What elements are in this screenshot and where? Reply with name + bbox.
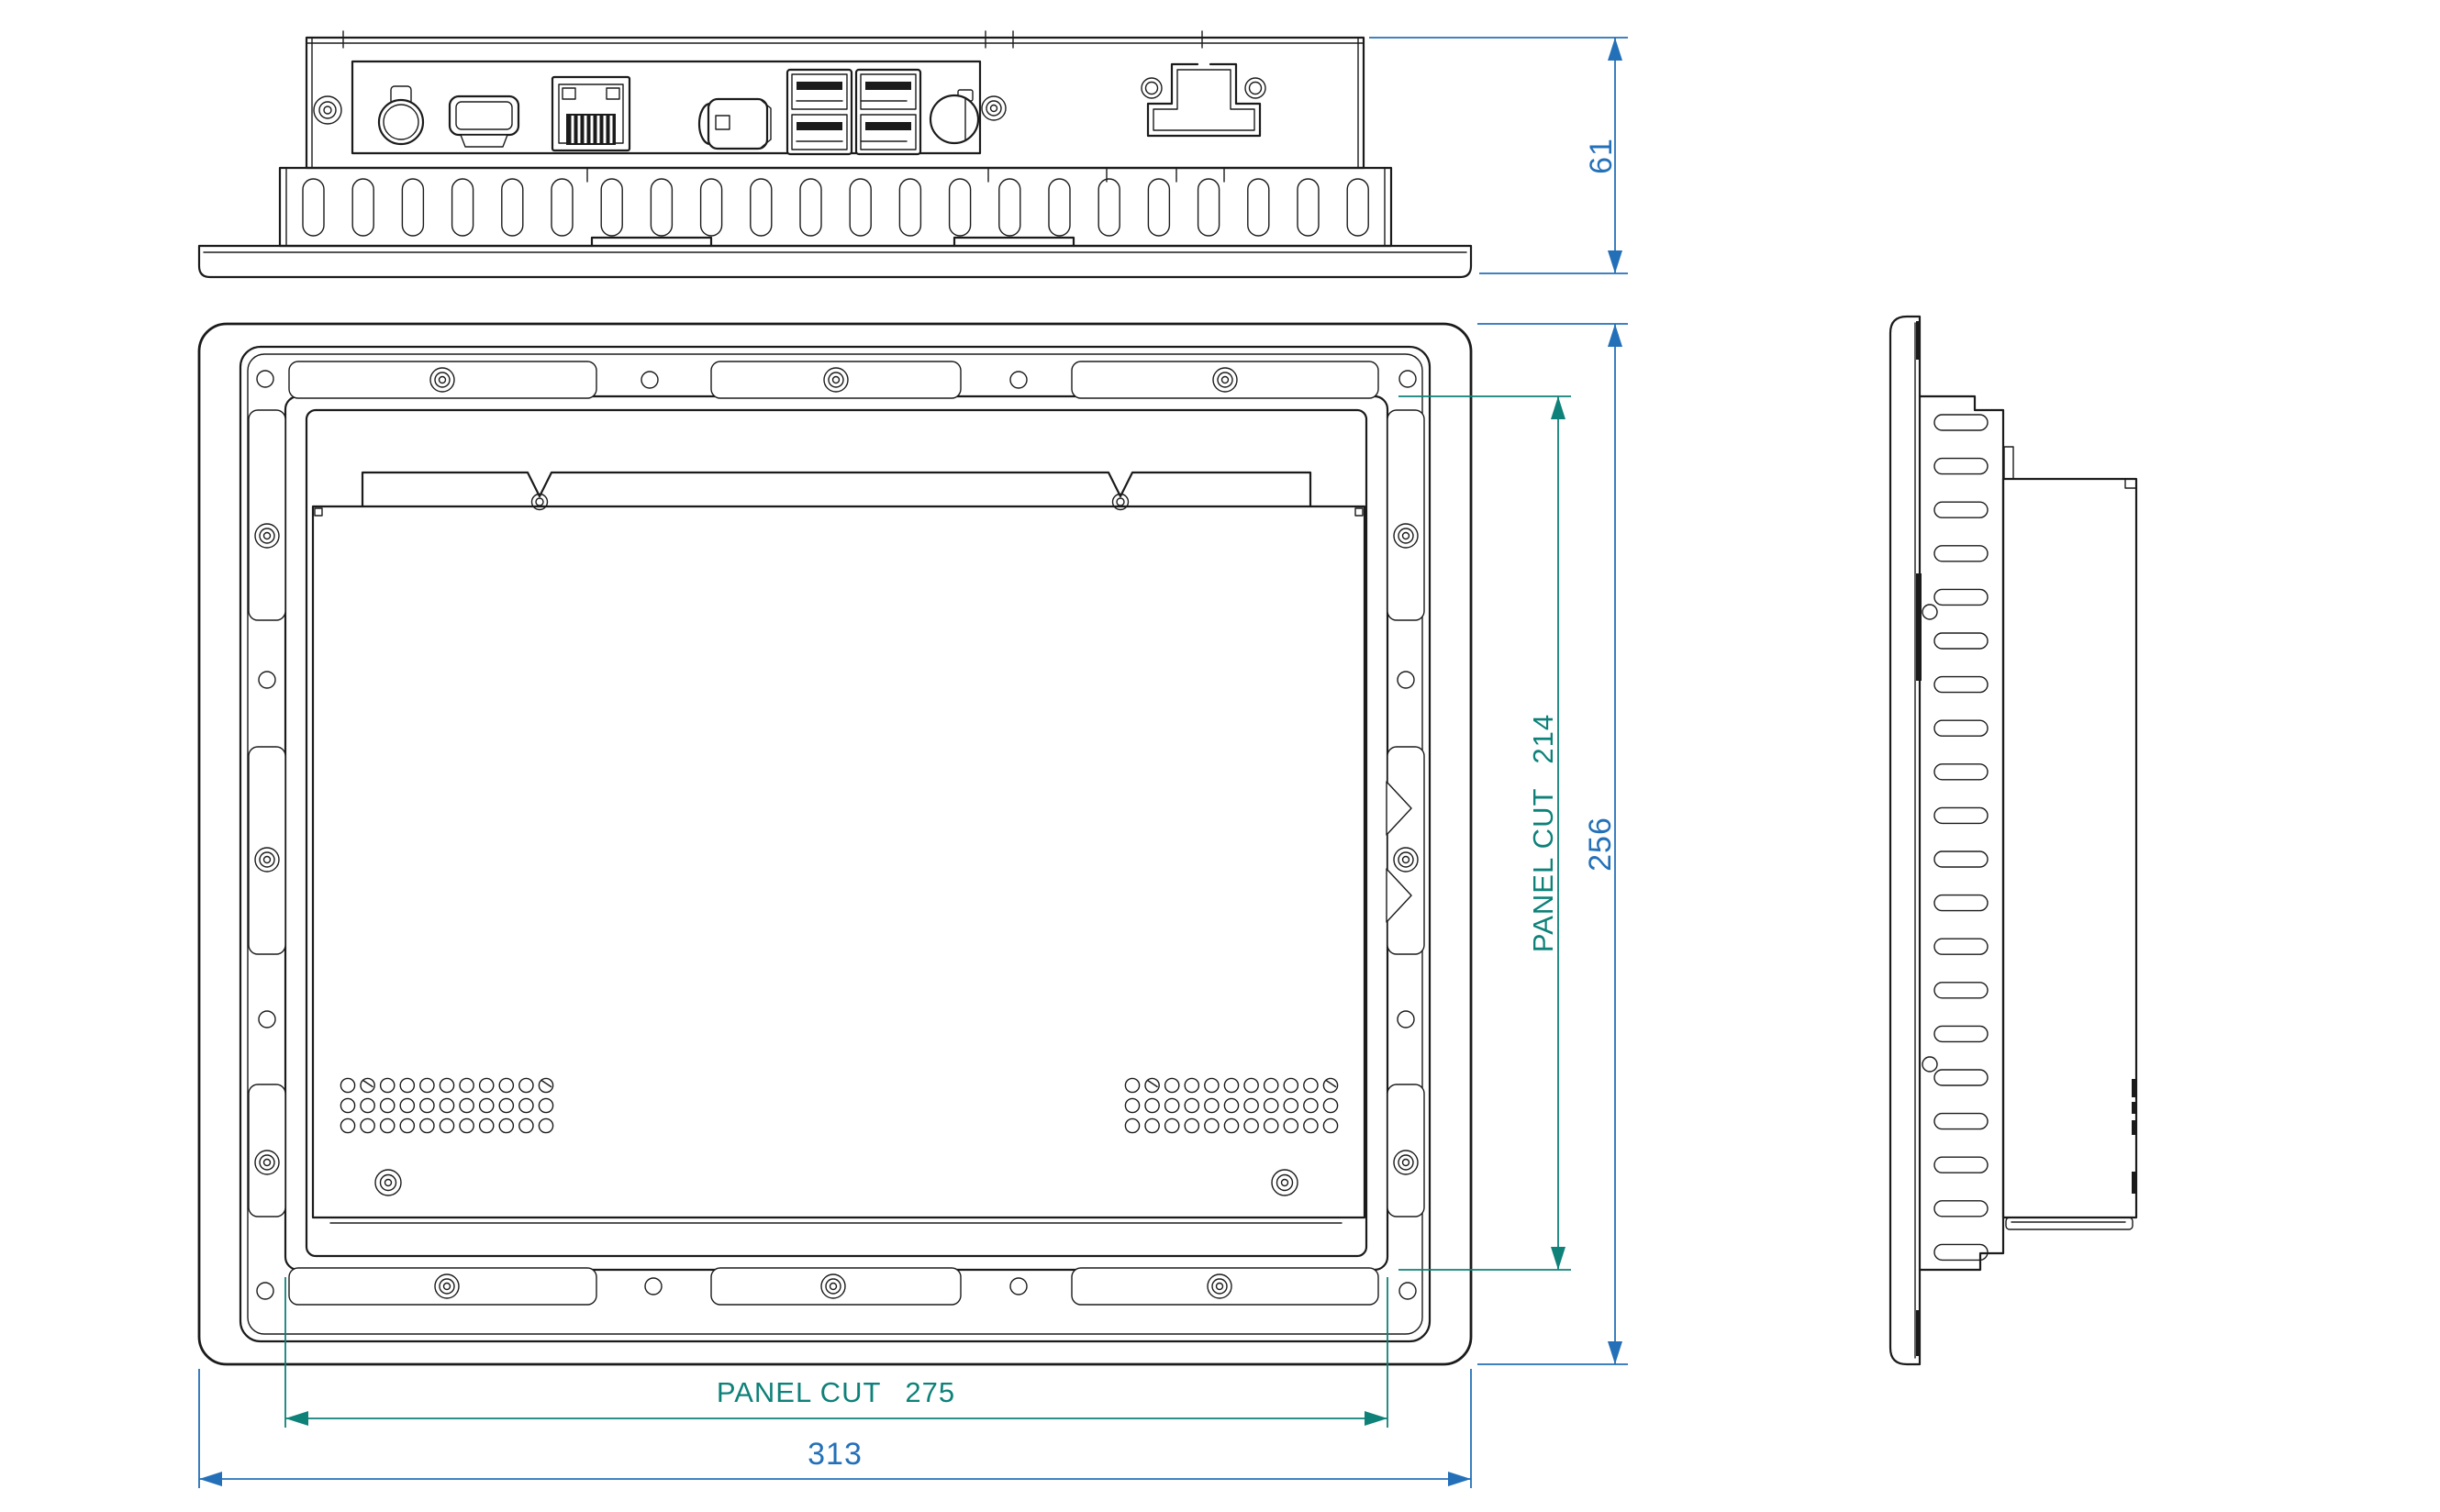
- panel-cut-height-prefix: PANEL CUT: [1527, 788, 1559, 953]
- mounting-tab: [289, 1268, 596, 1305]
- vent-slot: [1347, 179, 1368, 236]
- vent-slot: [1934, 415, 1988, 430]
- side-corner-notch: [2125, 479, 2136, 488]
- vent-slot: [502, 179, 523, 236]
- vent-slot: [1148, 179, 1169, 236]
- vent-slot: [999, 179, 1020, 236]
- vent-hole: [361, 1098, 374, 1112]
- vent-hole: [1304, 1078, 1318, 1092]
- mounting-tab: [249, 747, 285, 954]
- vent-hole: [1125, 1098, 1139, 1112]
- vent-hole: [480, 1078, 494, 1092]
- vent-slot: [950, 179, 971, 236]
- top-vent-slot-group: [303, 179, 1368, 236]
- vent-screw-slash: [363, 1081, 373, 1087]
- vent-hole: [519, 1118, 533, 1132]
- panel-cut-width-value: 275: [905, 1376, 955, 1408]
- mounting-tab: [1387, 747, 1424, 954]
- vent-hole: [1244, 1118, 1258, 1132]
- vent-hole: [1185, 1078, 1198, 1092]
- power-keyhole-icon: [379, 86, 423, 144]
- vent-hole: [1224, 1078, 1238, 1092]
- vent-slot: [800, 179, 821, 236]
- notch-hole-inner: [536, 498, 543, 506]
- plate-screw-icon: [375, 1170, 401, 1195]
- vent-hole: [340, 1118, 354, 1132]
- vent-hole-grid-group: [340, 1078, 1337, 1132]
- vent-slot: [899, 179, 920, 236]
- usb-dual-port-icon: [856, 70, 920, 154]
- notch-hole-inner: [1117, 498, 1124, 506]
- usb-dual-port-icon: [787, 70, 852, 154]
- vent-hole: [1185, 1118, 1198, 1132]
- side-view: [1890, 317, 2136, 1364]
- vent-slot: [1934, 764, 1988, 780]
- frame-inner-opening: [306, 410, 1366, 1256]
- vent-hole: [1165, 1118, 1179, 1132]
- vent-slot: [1248, 179, 1269, 236]
- mounting-hole-icon: [257, 1283, 273, 1299]
- vent-hole: [1165, 1098, 1179, 1112]
- mounting-hole-icon: [1010, 1278, 1027, 1295]
- mounting-hole-icon: [1399, 1283, 1416, 1299]
- vent-hole: [539, 1118, 552, 1132]
- side-hole-icon: [1922, 1057, 1937, 1072]
- vent-hole: [1205, 1118, 1219, 1132]
- vent-slot: [1934, 1026, 1988, 1041]
- vent-hole: [1165, 1078, 1179, 1092]
- vent-hole: [499, 1078, 513, 1092]
- bezel-inner-edge-inner: [248, 354, 1422, 1334]
- side-top-tab: [2004, 447, 2013, 479]
- vent-slot: [751, 179, 772, 236]
- mounting-tab: [1072, 1268, 1378, 1305]
- vent-hole: [1284, 1098, 1298, 1112]
- vent-slot: [850, 179, 871, 236]
- screw-icon: [314, 96, 341, 124]
- vent-slot: [1049, 179, 1070, 236]
- vent-slot: [452, 179, 474, 236]
- plate-corner-mark: [1355, 508, 1363, 516]
- mounting-hole-icon: [257, 371, 273, 387]
- vent-slot: [1934, 459, 1988, 474]
- bezel-edge-mark: [1916, 321, 1921, 360]
- vent-hole: [1284, 1118, 1298, 1132]
- vent-slot: [601, 179, 622, 236]
- mounting-hole-icon: [259, 672, 275, 688]
- vent-hole: [381, 1118, 395, 1132]
- vent-slot: [1198, 179, 1220, 236]
- vent-hole: [440, 1118, 453, 1132]
- top-flange: [199, 246, 1471, 277]
- rj45-ethernet-port-icon: [552, 77, 629, 150]
- vent-slot: [1934, 677, 1988, 693]
- mount-bracket-icon: [1142, 64, 1265, 136]
- front-bezel-outline: [199, 324, 1471, 1364]
- vent-hole: [1205, 1098, 1219, 1112]
- vent-slot: [352, 179, 373, 236]
- panel-cut-boundary: [285, 396, 1387, 1270]
- vent-hole: [1125, 1078, 1139, 1092]
- vent-slot: [402, 179, 423, 236]
- vent-hole: [400, 1078, 414, 1092]
- vent-hole: [1145, 1098, 1159, 1112]
- vent-hole: [420, 1118, 434, 1132]
- side-vent-slot-group: [1934, 415, 1988, 1260]
- top-view: [199, 31, 1471, 277]
- vent-hole: [440, 1098, 453, 1112]
- mounting-hole-icon: [259, 1011, 275, 1028]
- mounting-tab: [249, 410, 285, 620]
- side-hole-icon: [1922, 605, 1937, 619]
- vent-slot: [1934, 720, 1988, 736]
- vent-hole: [1265, 1118, 1278, 1132]
- mounting-tab: [1072, 361, 1378, 398]
- side-chassis-body: [2003, 479, 2136, 1217]
- flange-step-notches: [592, 238, 1074, 246]
- vent-hole: [539, 1098, 552, 1112]
- dimension-overall-width-label: 313: [808, 1437, 863, 1472]
- vent-hole: [1145, 1118, 1159, 1132]
- mounting-tab: [1387, 410, 1424, 620]
- hdmi-port-icon: [450, 96, 518, 147]
- mounting-hole-icon: [1398, 672, 1414, 688]
- vent-hole: [1224, 1118, 1238, 1132]
- dimension-overall-height-label: 256: [1583, 817, 1618, 872]
- vent-slot: [1934, 502, 1988, 517]
- vent-hole: [1304, 1098, 1318, 1112]
- vent-slot: [1934, 851, 1988, 867]
- vent-hole: [519, 1098, 533, 1112]
- mounting-hole-icon: [1398, 1011, 1414, 1028]
- audio-jack-icon: [930, 90, 978, 143]
- bezel-edge-mark: [1916, 1310, 1921, 1356]
- drawing-sheet: 61 256 PANEL CUT214 PANEL CUT: [0, 0, 2440, 1512]
- mounting-hole-icon: [641, 372, 658, 388]
- rear-view: [199, 324, 1471, 1364]
- vent-screw-slash: [1326, 1081, 1336, 1087]
- screw-icon: [982, 96, 1006, 120]
- panel-cut-height-value: 214: [1527, 714, 1559, 764]
- back-plate-notched-strip: [362, 472, 1310, 506]
- mounting-tab: [711, 361, 961, 398]
- technical-drawing-canvas: 61 256 PANEL CUT214 PANEL CUT: [0, 0, 2440, 1512]
- vent-slot: [303, 179, 324, 236]
- vent-hole: [460, 1098, 474, 1112]
- plate-corner-mark: [315, 508, 322, 516]
- vent-slot: [1934, 939, 1988, 954]
- vent-hole: [499, 1098, 513, 1112]
- side-vent-column: [1920, 396, 2003, 1270]
- vent-hole: [440, 1078, 453, 1092]
- vent-hole: [499, 1118, 513, 1132]
- vent-hole: [1304, 1118, 1318, 1132]
- mounting-tab: [289, 361, 596, 398]
- vent-hole: [1244, 1078, 1258, 1092]
- vent-slot: [1934, 807, 1988, 823]
- vent-slot: [1934, 546, 1988, 561]
- side-bottom-lip: [2006, 1217, 2133, 1229]
- vent-screw-slash: [1148, 1081, 1158, 1087]
- vent-slot: [1934, 1201, 1988, 1217]
- vent-slot: [1934, 1070, 1988, 1085]
- panel-cut-width-prefix: PANEL CUT: [717, 1376, 882, 1408]
- dimension-panel-cut-height-label: PANEL CUT214: [1527, 714, 1559, 952]
- vent-slot: [552, 179, 573, 236]
- alignment-ticks-top: [343, 31, 1202, 48]
- vent-hole: [340, 1098, 354, 1112]
- vent-hole: [400, 1098, 414, 1112]
- vent-slot: [1934, 589, 1988, 605]
- vent-hole: [381, 1098, 395, 1112]
- vent-hole: [1323, 1098, 1337, 1112]
- vent-hole: [400, 1118, 414, 1132]
- vent-hole: [480, 1098, 494, 1112]
- dimension-depth: 61: [1369, 38, 1628, 273]
- plate-screw-icon: [1272, 1170, 1298, 1195]
- bezel-edge-mark: [1916, 573, 1922, 681]
- vent-hole: [340, 1078, 354, 1092]
- vent-slot: [1934, 1157, 1988, 1173]
- vent-slot: [1098, 179, 1120, 236]
- vent-hole: [1323, 1118, 1337, 1132]
- vent-hole: [420, 1078, 434, 1092]
- vent-hole: [1284, 1078, 1298, 1092]
- vent-hole: [1185, 1098, 1198, 1112]
- vent-hole: [1265, 1078, 1278, 1092]
- mounting-hole-icon: [1010, 372, 1027, 388]
- dimension-depth-label: 61: [1584, 138, 1619, 174]
- vent-hole: [519, 1078, 533, 1092]
- vent-slot: [651, 179, 672, 236]
- vent-hole: [381, 1078, 395, 1092]
- vent-slot: [1298, 179, 1319, 236]
- vent-hole: [1224, 1098, 1238, 1112]
- vent-hole: [460, 1118, 474, 1132]
- vent-slot: [1934, 983, 1988, 998]
- vent-slot: [701, 179, 722, 236]
- vent-slot: [1934, 895, 1988, 911]
- vent-hole: [480, 1118, 494, 1132]
- vent-slot: [1934, 633, 1988, 649]
- vent-hole: [420, 1098, 434, 1112]
- vent-hole: [361, 1118, 374, 1132]
- vent-hole: [1205, 1078, 1219, 1092]
- vent-hole: [1244, 1098, 1258, 1112]
- bezel-inner-edge-outer: [240, 347, 1430, 1341]
- mounting-hole-icon: [645, 1278, 662, 1295]
- vent-hole: [1265, 1098, 1278, 1112]
- vent-screw-slash: [541, 1081, 552, 1087]
- vent-hole: [460, 1078, 474, 1092]
- mounting-hole-icon: [1399, 371, 1416, 387]
- vent-hole: [1125, 1118, 1139, 1132]
- dc-connector-icon: [699, 99, 771, 149]
- dimension-panel-cut-width-label: PANEL CUT275: [717, 1376, 955, 1408]
- vent-slot: [1934, 1114, 1988, 1129]
- frame-fastener-group: [255, 368, 1418, 1299]
